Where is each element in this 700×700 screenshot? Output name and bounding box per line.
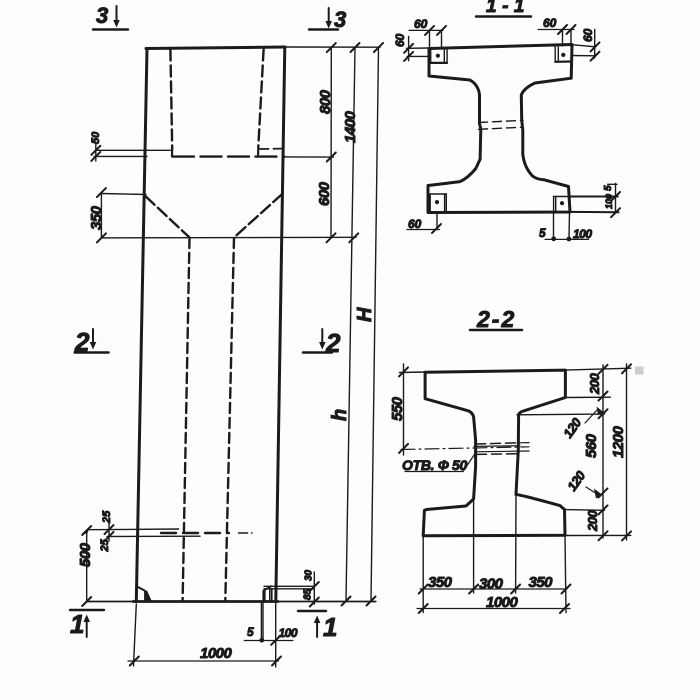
svg-text:120: 120 [560,415,585,441]
svg-text:550: 550 [389,396,406,421]
svg-text:60: 60 [581,28,595,42]
svg-text:1: 1 [70,609,84,639]
svg-text:350: 350 [428,574,453,591]
svg-text:350: 350 [88,205,105,230]
svg-text:300: 300 [479,576,504,593]
svg-text:H: H [354,307,376,322]
svg-text:5: 5 [539,226,546,240]
svg-text:100: 100 [573,227,592,241]
svg-text:100: 100 [604,194,614,209]
svg-text:1000: 1000 [486,594,519,611]
svg-text:600: 600 [316,181,333,206]
svg-text:1000: 1000 [200,645,233,662]
svg-text:120: 120 [564,468,589,494]
svg-text:500: 500 [77,542,94,567]
svg-text:5: 5 [603,185,614,191]
svg-text:60: 60 [393,33,407,47]
svg-text:30: 30 [304,569,315,581]
svg-text:1200: 1200 [610,425,627,458]
svg-text:1-1: 1-1 [486,0,530,17]
svg-text:800: 800 [317,89,334,114]
svg-text:85: 85 [303,588,314,600]
svg-text:1400: 1400 [342,110,359,143]
svg-text:ОТВ. Ф 50: ОТВ. Ф 50 [402,457,468,473]
svg-text:560: 560 [583,433,600,458]
svg-text:3: 3 [334,7,346,32]
svg-text:3: 3 [96,3,108,28]
svg-text:350: 350 [529,574,554,591]
svg-text:200: 200 [585,510,600,532]
svg-text:5: 5 [247,625,254,639]
svg-text:2-2: 2-2 [476,306,516,332]
svg-text:h: h [329,409,351,421]
svg-text:1: 1 [323,612,337,642]
svg-text:50: 50 [90,131,102,144]
svg-text:25: 25 [101,510,113,524]
svg-text:200: 200 [587,373,602,395]
svg-text:60: 60 [543,16,557,30]
svg-text:25: 25 [99,538,111,552]
svg-text:60: 60 [408,217,422,231]
svg-text:60: 60 [414,17,428,31]
svg-text:100: 100 [279,626,298,640]
